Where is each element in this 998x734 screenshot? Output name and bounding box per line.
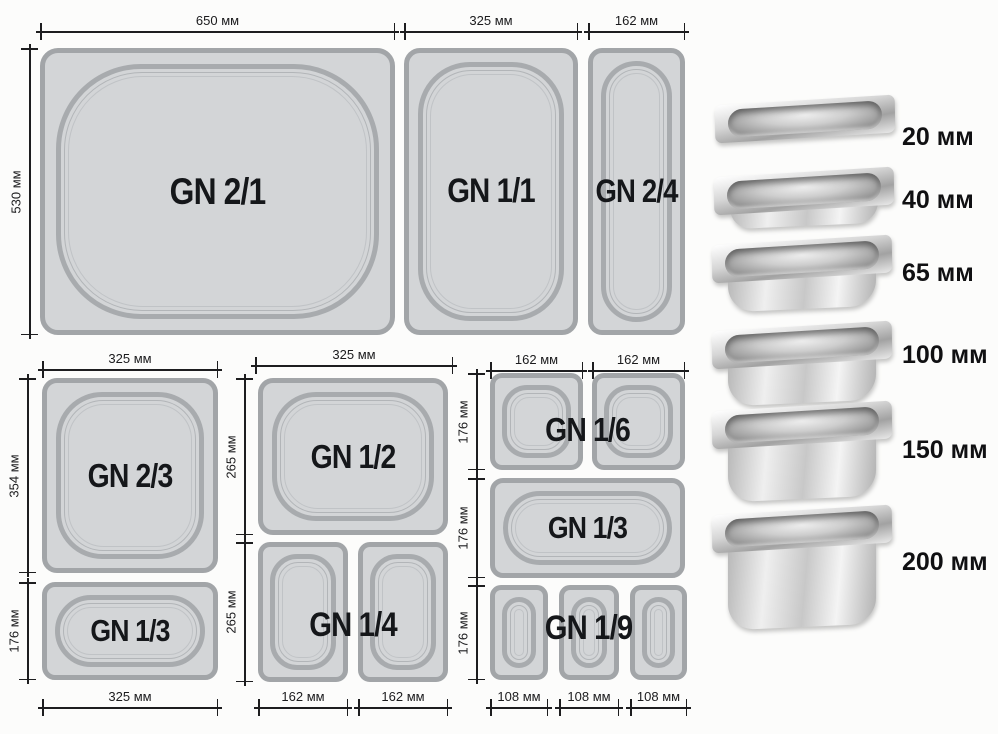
dimension-label: 325 мм: [255, 347, 453, 362]
gastronorm-size-diagram: 650 мм 325 мм 162 мм 530 мм GN 2/1 GN 1/…: [0, 0, 998, 734]
dimension-label: 108 мм: [630, 689, 687, 704]
depth-label-20mm: 20 мм: [902, 122, 998, 152]
depth-label-40mm: 40 мм: [902, 185, 998, 215]
dimension-label: 354 мм: [7, 454, 22, 497]
dimension-label: 530 мм: [9, 170, 24, 213]
pan-label: GN 1/1: [420, 53, 561, 330]
pan-photo-200mm: [712, 510, 892, 627]
pan-photo-20mm: [715, 100, 895, 137]
pan-gn-2-4: GN 2/4: [588, 48, 685, 335]
dimension-label: 108 мм: [490, 689, 548, 704]
dimension-label: 176 мм: [456, 611, 471, 654]
pan-gn-1-3-right: GN 1/3: [490, 478, 685, 578]
pan-label-gn-1-4: GN 1/4: [271, 600, 434, 650]
dimension-label: 162 мм: [490, 352, 583, 367]
dimension-label: 265 мм: [224, 590, 239, 633]
pan-label-gn-1-6: GN 1/6: [504, 406, 672, 454]
dimension-label: 108 мм: [559, 689, 619, 704]
depth-label-100mm: 100 мм: [902, 340, 998, 370]
pan-label: GN 1/2: [276, 383, 431, 530]
dimension-label: 265 мм: [224, 435, 239, 478]
dimension-label: 650 мм: [40, 13, 395, 28]
pan-photo-65mm: [712, 240, 892, 309]
pan-label-gn-1-9: GN 1/9: [504, 604, 673, 652]
depth-label-65mm: 65 мм: [902, 258, 998, 288]
depth-label-150mm: 150 мм: [902, 435, 998, 465]
pan-label: GN 1/3: [59, 587, 202, 675]
dimension-label: 162 мм: [258, 689, 348, 704]
dimension-label: 162 мм: [588, 13, 685, 28]
dimension-label: 176 мм: [456, 506, 471, 549]
pan-photo-100mm: [712, 326, 892, 403]
depth-label-200mm: 200 мм: [902, 547, 998, 577]
pan-gn-2-3: GN 2/3: [42, 378, 218, 573]
dimension-label: 325 мм: [42, 689, 218, 704]
pan-gn-2-1: GN 2/1: [40, 48, 395, 335]
pan-photo-150mm: [712, 406, 892, 499]
dimension-label: 325 мм: [404, 13, 578, 28]
dimension-label: 162 мм: [358, 689, 448, 704]
dimension-label: 176 мм: [7, 609, 22, 652]
dimension-label: 162 мм: [592, 352, 685, 367]
pan-photo-rim: [715, 95, 896, 144]
dimension-label: 176 мм: [456, 400, 471, 443]
dimension-label: 325 мм: [42, 351, 218, 366]
pan-gn-1-1: GN 1/1: [404, 48, 578, 335]
pan-gn-1-3-left: GN 1/3: [42, 582, 218, 680]
pan-gn-1-2: GN 1/2: [258, 378, 448, 535]
pan-label: GN 2/4: [599, 53, 674, 330]
pan-photo-40mm: [714, 172, 894, 226]
dimension-line: [36, 31, 399, 33]
pan-label: GN 2/1: [69, 53, 366, 330]
pan-label: GN 1/3: [508, 483, 667, 573]
pan-label: GN 2/3: [59, 383, 202, 568]
